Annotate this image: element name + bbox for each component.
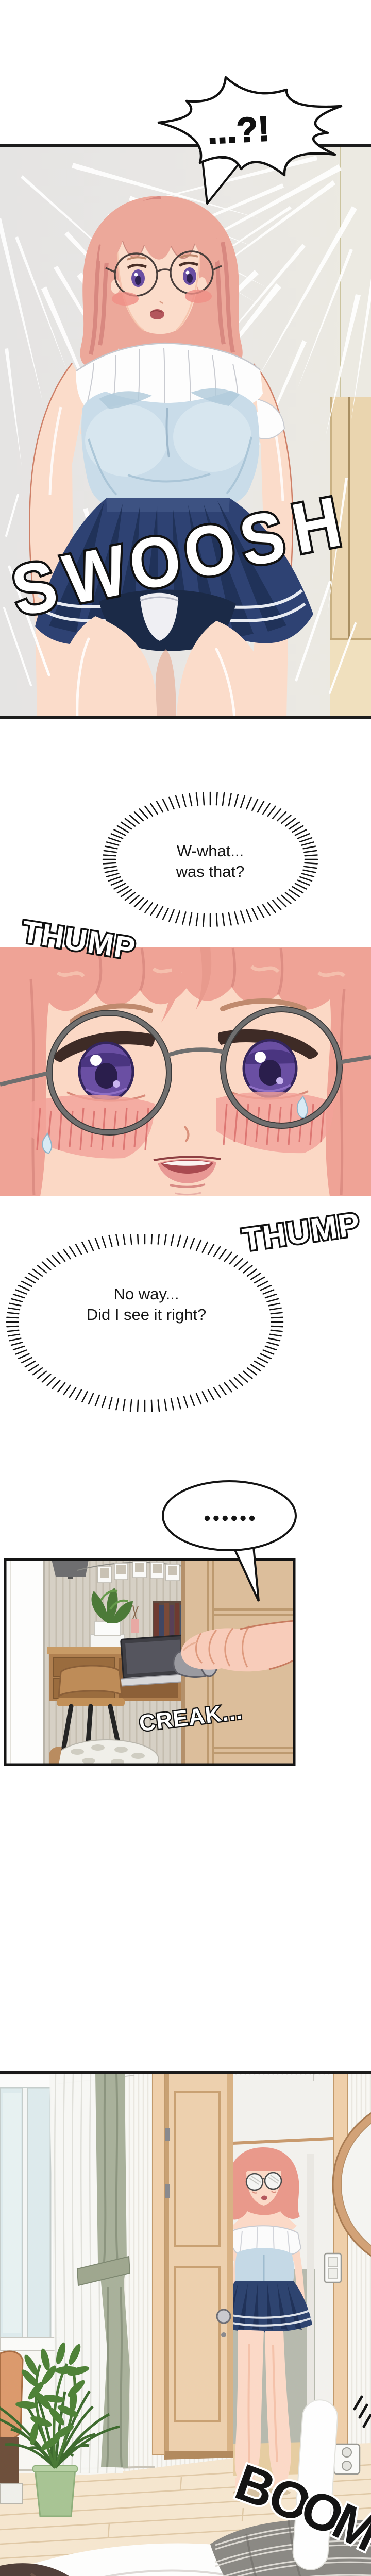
svg-text:W-what...: W-what...	[177, 842, 244, 860]
svg-text:THUMP: THUMP	[20, 914, 139, 966]
svg-text:No way...: No way...	[114, 1285, 179, 1303]
svg-text:...?!: ...?!	[206, 109, 271, 151]
svg-text:was that?: was that?	[176, 862, 245, 880]
svg-text:Did I see it right?: Did I see it right?	[87, 1306, 207, 1324]
